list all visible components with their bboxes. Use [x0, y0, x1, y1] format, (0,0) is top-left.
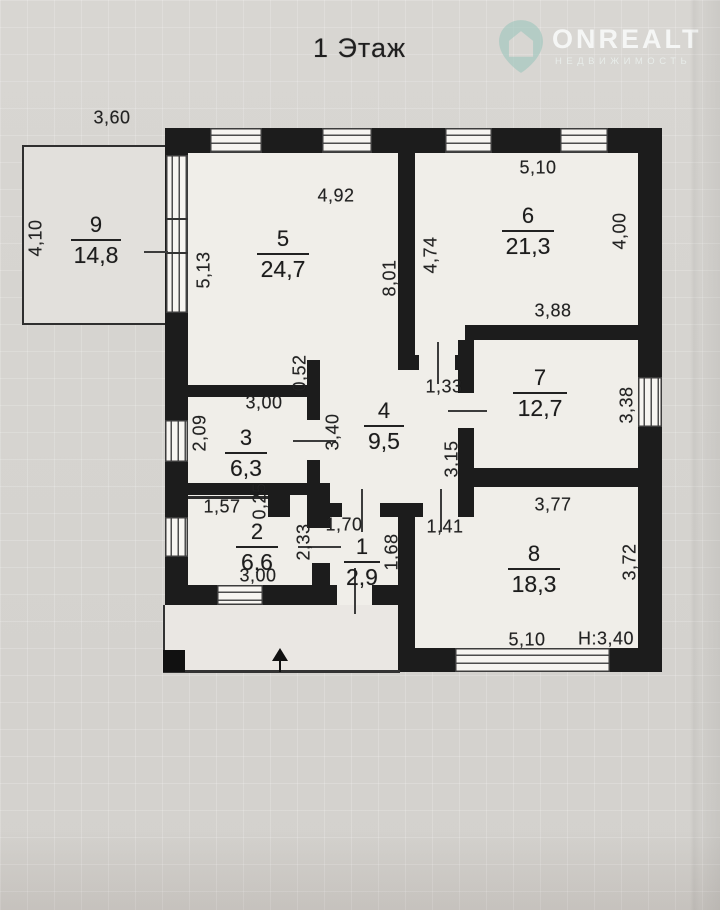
- dimension-label: 1,70: [325, 515, 362, 536]
- porch-pillar: [163, 650, 185, 672]
- fraction-line: [236, 546, 278, 548]
- fraction-line: [71, 239, 121, 241]
- room-area: 21,3: [502, 235, 554, 258]
- wall: [312, 563, 330, 585]
- dimension-label: 3,15: [442, 440, 463, 477]
- window: [322, 128, 372, 153]
- dimension-tick: [144, 251, 168, 253]
- room-area: 6,3: [225, 457, 267, 480]
- wall: [458, 340, 474, 517]
- room-area: 9,5: [364, 430, 404, 453]
- room-number: 9: [71, 214, 121, 236]
- wall: [465, 325, 638, 340]
- fraction-line: [344, 561, 380, 563]
- entrance-arrow-icon: [279, 660, 281, 672]
- wall: [268, 483, 290, 517]
- window: [445, 128, 492, 153]
- floor-plan: 914,8524,7621,349,5712,736,326,612,9818,…: [0, 0, 720, 910]
- window: [217, 585, 263, 605]
- dimension-label: 1,57: [203, 497, 240, 518]
- dimension-label: 3,88: [534, 301, 571, 322]
- room-label: 818,3: [508, 543, 560, 596]
- dimension-label: 5,13: [194, 251, 215, 288]
- dimension-label: 3,38: [617, 386, 638, 423]
- dimension-label: 0,25: [250, 482, 271, 519]
- room-label: 49,5: [364, 400, 404, 453]
- dimension-label: 2,09: [190, 414, 211, 451]
- dimension-label: 3,60: [93, 108, 130, 129]
- wall: [474, 468, 638, 487]
- dimension-label: 3,00: [239, 566, 276, 587]
- room-number: 7: [513, 367, 567, 389]
- room-label: 12,9: [344, 536, 380, 589]
- room-number: 5: [257, 228, 309, 250]
- wall: [398, 505, 415, 672]
- dimension-label: 1,33: [425, 377, 462, 398]
- room-number: 3: [225, 427, 267, 449]
- dimension-label: 5,10: [519, 158, 556, 179]
- fraction-line: [513, 392, 567, 394]
- room-area: 18,3: [508, 573, 560, 596]
- room-number: 1: [344, 536, 380, 558]
- fraction-line: [225, 452, 267, 454]
- dimension-label: 8,01: [380, 259, 401, 296]
- dimension-label: 4,92: [317, 186, 354, 207]
- room-number: 2: [236, 521, 278, 543]
- room-label: 36,3: [225, 427, 267, 480]
- dimension-label: 1,41: [426, 517, 463, 538]
- dimension-label: 1,68: [382, 533, 403, 570]
- fraction-line: [257, 253, 309, 255]
- dimension-label: 2,33: [294, 523, 315, 560]
- porch-edge: [163, 670, 400, 673]
- dimension-label: 5,10: [508, 630, 545, 651]
- dimension-label: 3,40: [323, 413, 344, 450]
- room-label: 621,3: [502, 205, 554, 258]
- dimension-label: 3,00: [245, 393, 282, 414]
- room-label: 524,7: [257, 228, 309, 281]
- window: [638, 377, 662, 427]
- room-area: 2,9: [344, 566, 380, 589]
- window: [165, 517, 188, 557]
- room-area: 12,7: [513, 397, 567, 420]
- window: [560, 128, 608, 153]
- glazed-wall: [166, 155, 188, 313]
- ceiling-height-label: Н:3,40: [578, 629, 634, 650]
- room-label: 712,7: [513, 367, 567, 420]
- fraction-line: [502, 230, 554, 232]
- scanned-floor-plan-page: 1 Этаж ONREALT НЕДВИЖИМОСТЬ: [0, 0, 720, 910]
- window: [210, 128, 262, 153]
- room-number: 4: [364, 400, 404, 422]
- room-label: 914,8: [71, 214, 121, 267]
- window: [455, 648, 610, 672]
- room-number: 8: [508, 543, 560, 565]
- dimension-label: 4,10: [26, 219, 47, 256]
- dimension-label: 4,00: [610, 212, 631, 249]
- wall: [398, 153, 415, 370]
- room-area: 14,8: [71, 244, 121, 267]
- room-number: 6: [502, 205, 554, 227]
- room-area: 24,7: [257, 258, 309, 281]
- dimension-label: 3,77: [534, 495, 571, 516]
- dimension-label: 0,52: [290, 354, 311, 391]
- fraction-line: [508, 568, 560, 570]
- window: [165, 420, 188, 462]
- fraction-line: [364, 425, 404, 427]
- dimension-label: 3,72: [620, 543, 641, 580]
- dimension-label: 4,74: [421, 236, 442, 273]
- door-tick: [448, 410, 487, 412]
